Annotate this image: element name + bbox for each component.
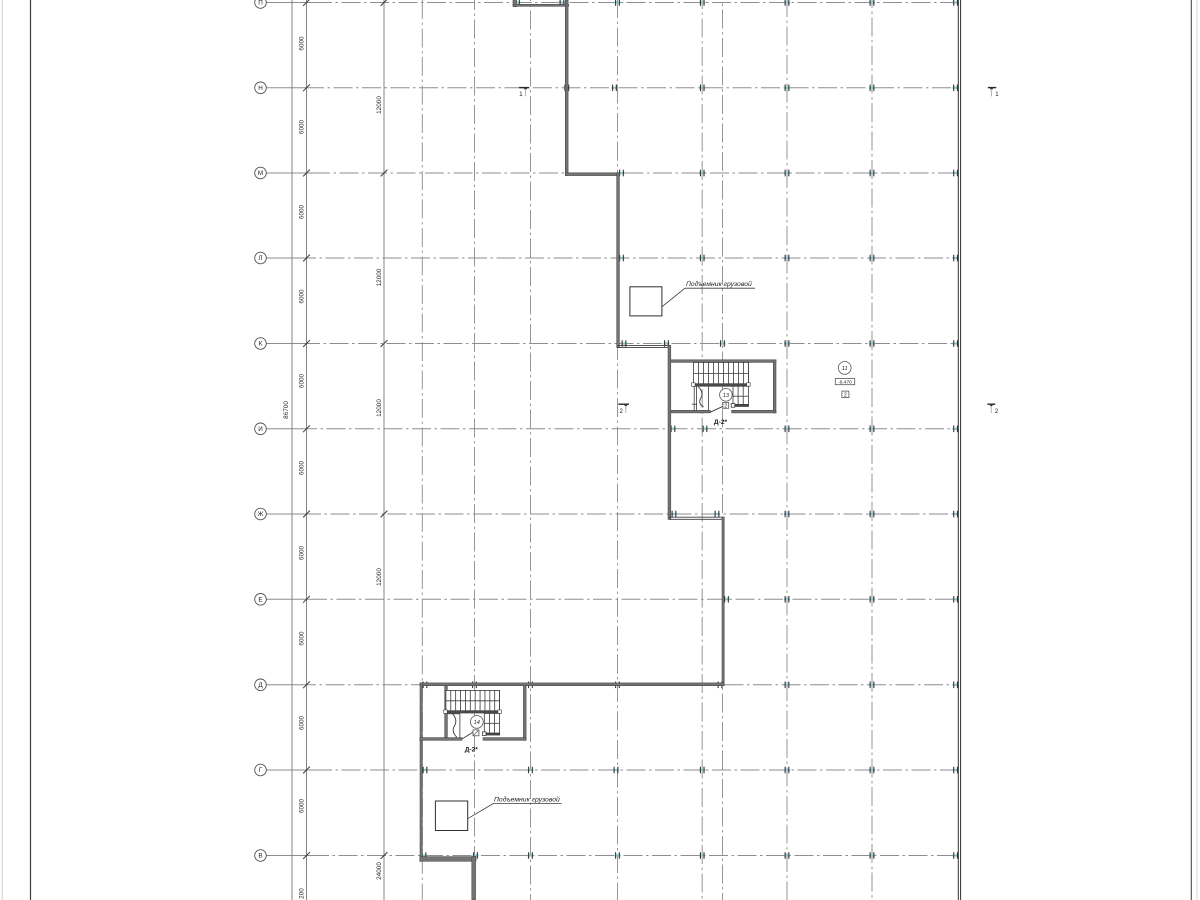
svg-text:6000: 6000 [299, 373, 306, 388]
svg-text:Д-2*: Д-2* [714, 419, 728, 426]
svg-text:1: 1 [995, 92, 999, 98]
svg-text:6000: 6000 [299, 204, 306, 219]
svg-text:Д-2*: Д-2* [465, 747, 479, 754]
svg-text:6000: 6000 [299, 119, 306, 134]
svg-text:П: П [258, 0, 263, 7]
svg-text:2: 2 [620, 409, 624, 415]
svg-text:2: 2 [995, 409, 999, 415]
svg-text:К: К [259, 341, 263, 348]
svg-text:13: 13 [723, 393, 730, 399]
svg-text:1: 1 [519, 92, 523, 98]
svg-text:Д: Д [258, 682, 263, 689]
svg-text:2: 2 [724, 403, 727, 409]
svg-text:6000: 6000 [299, 545, 306, 560]
svg-text:Ж: Ж [258, 511, 264, 518]
svg-text:6000: 6000 [299, 631, 306, 646]
svg-text:Подъемник грузовой: Подъемник грузовой [686, 280, 752, 288]
svg-text:6000: 6000 [299, 715, 306, 730]
svg-text:12000: 12000 [376, 96, 383, 114]
svg-text:Подъемник грузовой: Подъемник грузовой [494, 795, 560, 803]
svg-text:Н: Н [258, 85, 263, 92]
svg-text:6000: 6000 [299, 798, 306, 813]
svg-text:11: 11 [842, 366, 848, 372]
svg-text:Л: Л [258, 255, 262, 262]
svg-text:Г: Г [259, 767, 263, 774]
svg-text:В: В [258, 853, 262, 860]
svg-text:14: 14 [474, 720, 480, 726]
svg-text:6000: 6000 [299, 289, 306, 304]
svg-text:М: М [258, 170, 263, 177]
svg-text:6000: 6000 [299, 460, 306, 475]
svg-text:И: И [258, 426, 263, 433]
svg-text:24000: 24000 [376, 862, 383, 880]
svg-text:12000: 12000 [376, 568, 383, 586]
svg-text:6000: 6000 [299, 36, 306, 51]
svg-text:12000: 12000 [376, 399, 383, 417]
svg-text:2: 2 [844, 392, 847, 398]
svg-text:Е: Е [258, 597, 262, 604]
svg-text:12000: 12000 [376, 268, 383, 286]
svg-text:-9.470: -9.470 [838, 380, 852, 386]
svg-text:200: 200 [299, 888, 306, 899]
svg-text:86700: 86700 [283, 401, 290, 419]
